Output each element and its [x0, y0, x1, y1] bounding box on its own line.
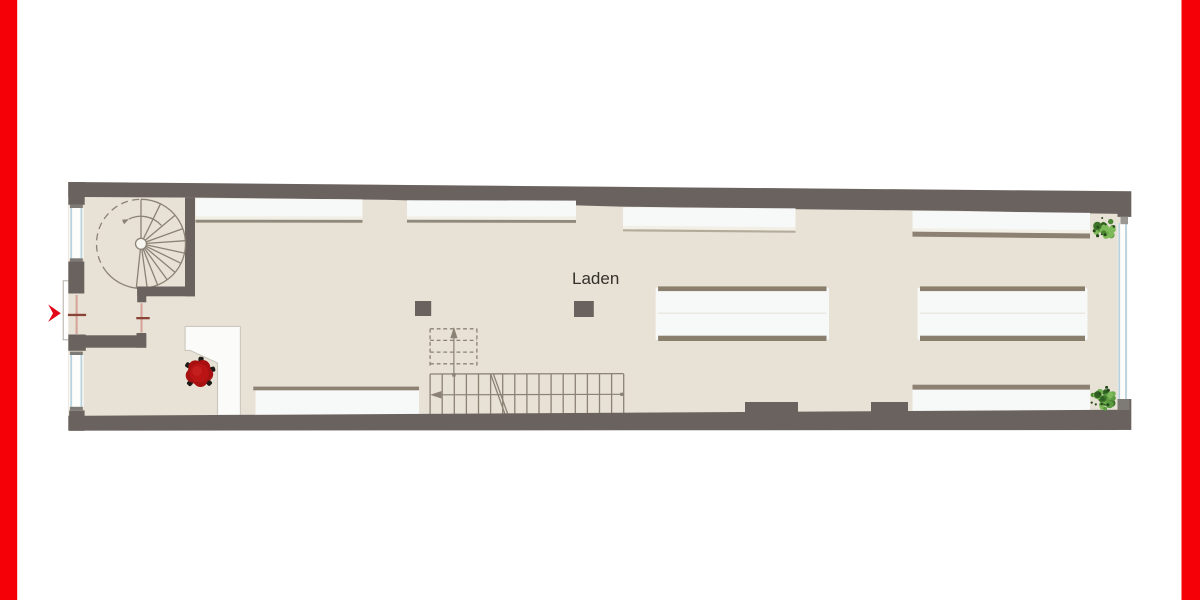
svg-text:Laden: Laden: [572, 269, 619, 288]
